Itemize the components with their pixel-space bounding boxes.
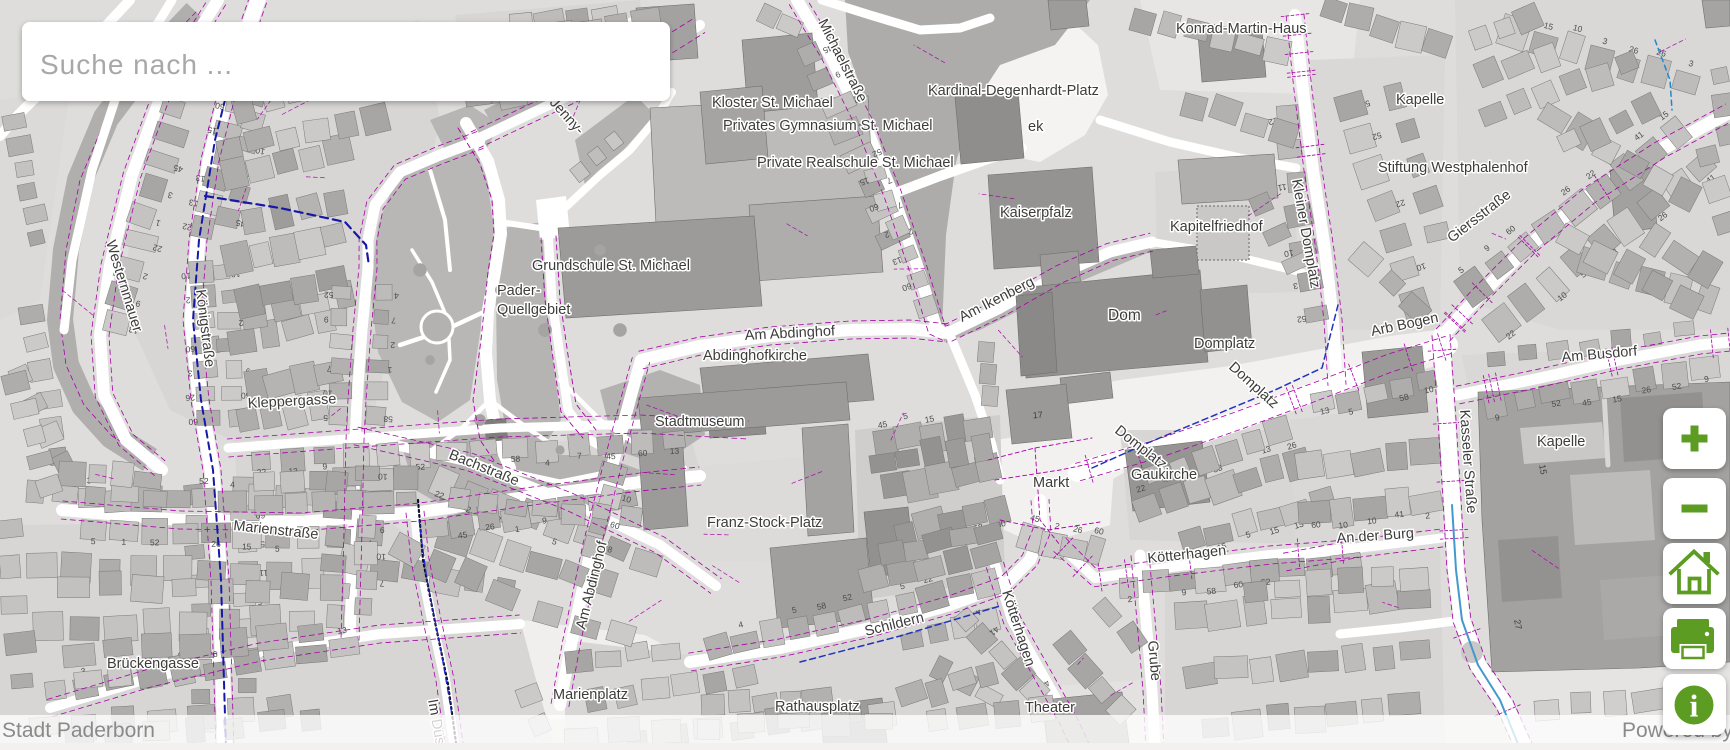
svg-text:45: 45 [457,529,468,540]
svg-text:15: 15 [924,413,935,425]
svg-text:Domplatz: Domplatz [1194,336,1255,352]
svg-text:15: 15 [242,541,252,551]
svg-text:5: 5 [323,413,328,423]
svg-text:9: 9 [322,461,327,471]
svg-text:26: 26 [211,539,221,549]
svg-text:11: 11 [1277,182,1288,193]
svg-text:41: 41 [1394,509,1405,520]
svg-text:4: 4 [230,480,235,490]
svg-text:10: 10 [1367,515,1378,526]
svg-text:45: 45 [877,419,888,431]
svg-text:Stadtmuseum: Stadtmuseum [655,414,744,430]
svg-text:Konrad-Martin-Haus: Konrad-Martin-Haus [1176,21,1307,37]
svg-text:10: 10 [376,552,386,562]
svg-text:17: 17 [1032,410,1043,421]
svg-text:Stadt Paderborn: Stadt Paderborn [2,719,155,742]
svg-text:52: 52 [150,537,160,547]
svg-text:52: 52 [324,290,334,300]
svg-text:2: 2 [185,295,191,305]
svg-text:i: i [1690,688,1699,724]
svg-text:Privates Gymnasium St. Michael: Privates Gymnasium St. Michael [723,118,933,134]
svg-text:Kapelle: Kapelle [1396,92,1444,108]
svg-text:7: 7 [326,364,331,374]
svg-text:Abdinghofkirche: Abdinghofkirche [703,348,807,364]
svg-text:Stiftung Westphalenhof: Stiftung Westphalenhof [1378,160,1529,176]
svg-text:Markt: Markt [1033,475,1069,491]
svg-text:52: 52 [1551,397,1562,408]
svg-text:5: 5 [275,544,280,554]
svg-text:58: 58 [1206,586,1217,597]
svg-text:Quellgebiet: Quellgebiet [497,302,570,318]
svg-text:27: 27 [1512,619,1524,631]
svg-text:1: 1 [121,537,126,547]
svg-text:Rathausplatz: Rathausplatz [775,699,860,715]
svg-text:9: 9 [323,314,328,324]
svg-text:Suche nach ...: Suche nach ... [40,49,233,80]
svg-text:Grundschule St. Michael: Grundschule St. Michael [532,258,690,274]
svg-text:4: 4 [545,458,550,468]
svg-text:Kardinal-Degenhardt-Platz: Kardinal-Degenhardt-Platz [928,83,1099,99]
svg-text:9: 9 [379,525,384,535]
svg-text:4: 4 [394,291,399,301]
svg-text:60: 60 [1233,579,1244,590]
svg-text:58: 58 [383,414,393,424]
svg-text:10: 10 [1338,519,1349,530]
svg-text:Theater: Theater [1025,700,1075,716]
svg-text:1: 1 [387,365,392,375]
svg-text:Franz-Stock-Platz: Franz-Stock-Platz [707,515,822,531]
svg-text:60: 60 [638,448,648,458]
svg-text:2: 2 [390,340,395,350]
svg-text:Pader-: Pader- [497,283,541,299]
svg-text:58: 58 [511,454,521,464]
svg-text:Brückengasse: Brückengasse [107,656,199,672]
svg-text:Kapelle: Kapelle [1537,434,1585,450]
svg-text:5: 5 [91,536,96,546]
svg-text:45: 45 [606,451,616,461]
svg-text:Marienplatz: Marienplatz [553,687,628,703]
svg-text:10: 10 [378,472,388,482]
svg-text:Kapitelfriedhof: Kapitelfriedhof [1170,219,1264,235]
svg-text:Kloster St. Michael: Kloster St. Michael [712,95,833,111]
svg-text:60: 60 [1311,519,1322,530]
svg-text:7: 7 [577,451,582,461]
svg-text:45: 45 [1581,397,1592,408]
svg-text:Dom: Dom [1108,307,1141,324]
svg-text:Kaiserpfalz: Kaiserpfalz [1000,205,1072,221]
svg-text:7: 7 [391,315,396,325]
svg-text:15: 15 [1612,393,1623,404]
svg-text:26: 26 [485,521,496,532]
svg-text:15: 15 [1537,464,1549,476]
svg-text:ek: ek [1028,119,1044,135]
svg-text:13: 13 [670,446,680,456]
svg-text:Private Realschule St. Michael: Private Realschule St. Michael [757,155,954,171]
svg-text:52: 52 [1296,314,1307,325]
svg-text:52: 52 [1671,380,1682,391]
svg-text:Gaukirche: Gaukirche [1131,467,1197,483]
svg-text:26: 26 [1641,384,1652,395]
svg-text:60: 60 [188,417,198,428]
svg-text:7: 7 [379,579,384,589]
